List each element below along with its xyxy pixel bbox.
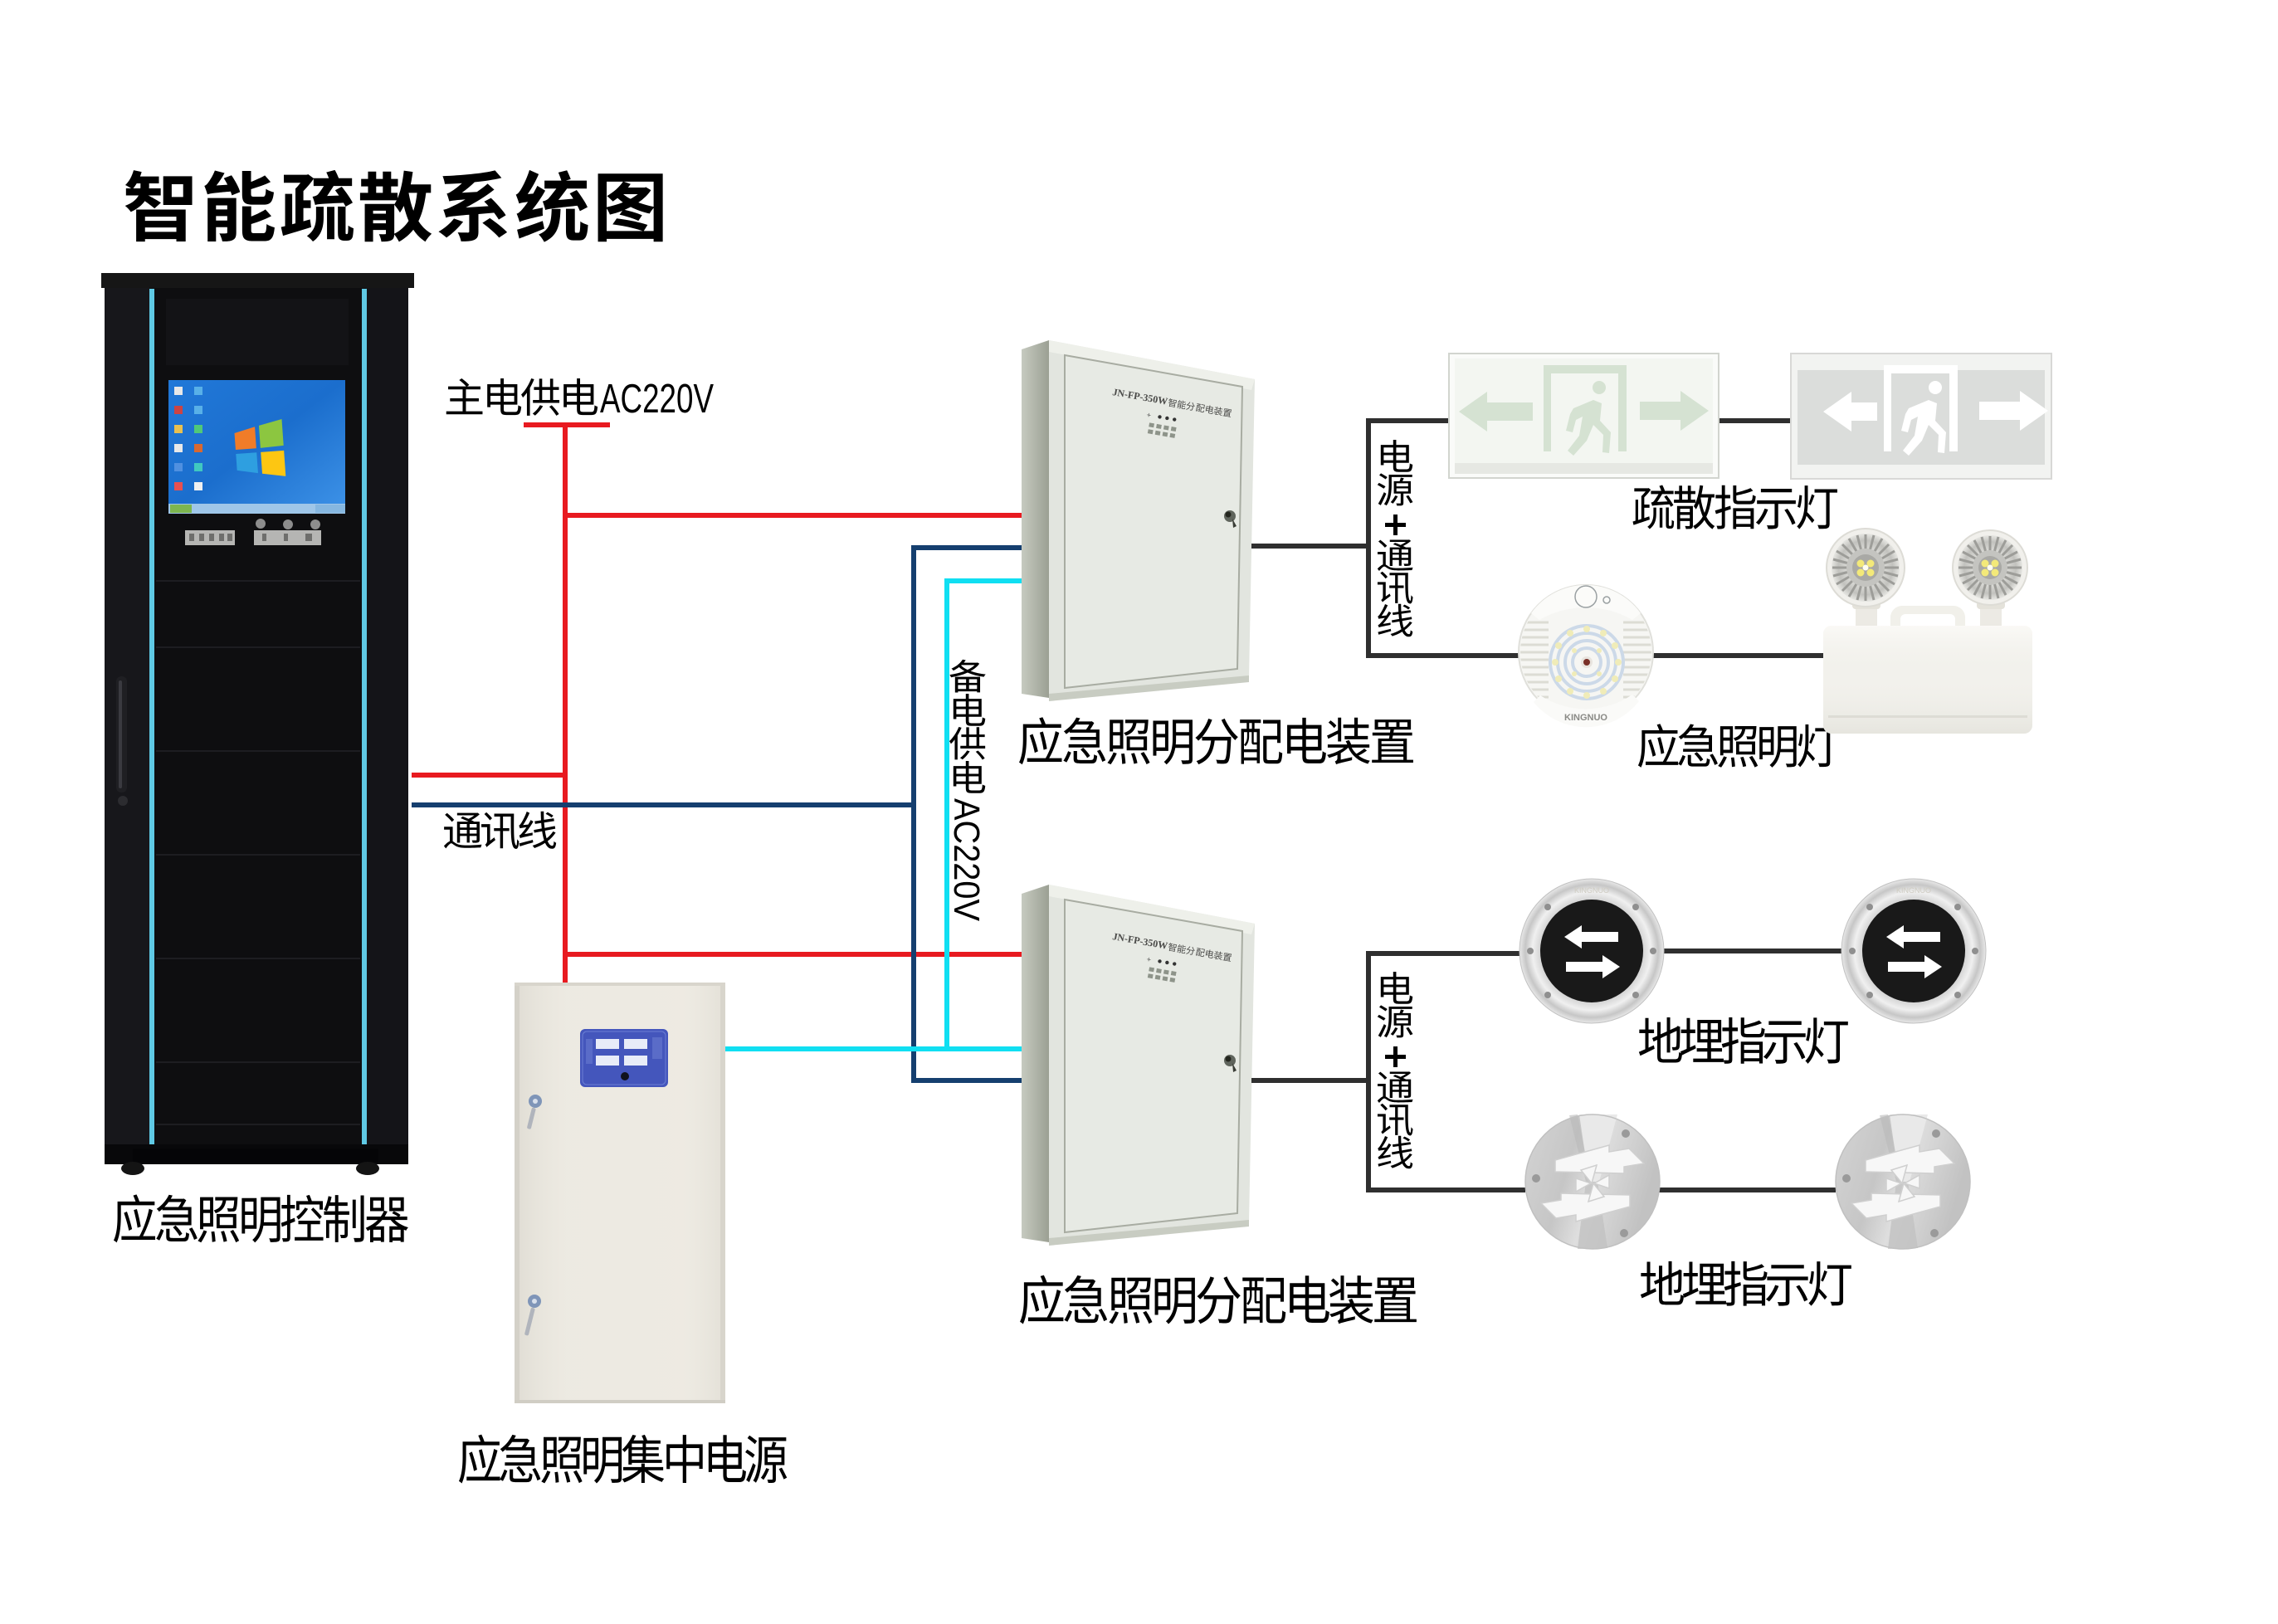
svg-text:KINGNUO: KINGNUO: [1896, 886, 1931, 895]
svg-text:AC220V: AC220V: [946, 798, 987, 922]
svg-text:KINGNUO: KINGNUO: [1574, 886, 1609, 895]
svg-text:AC220V: AC220V: [600, 377, 714, 422]
svg-text:KINGNUO: KINGNUO: [1564, 713, 1607, 723]
